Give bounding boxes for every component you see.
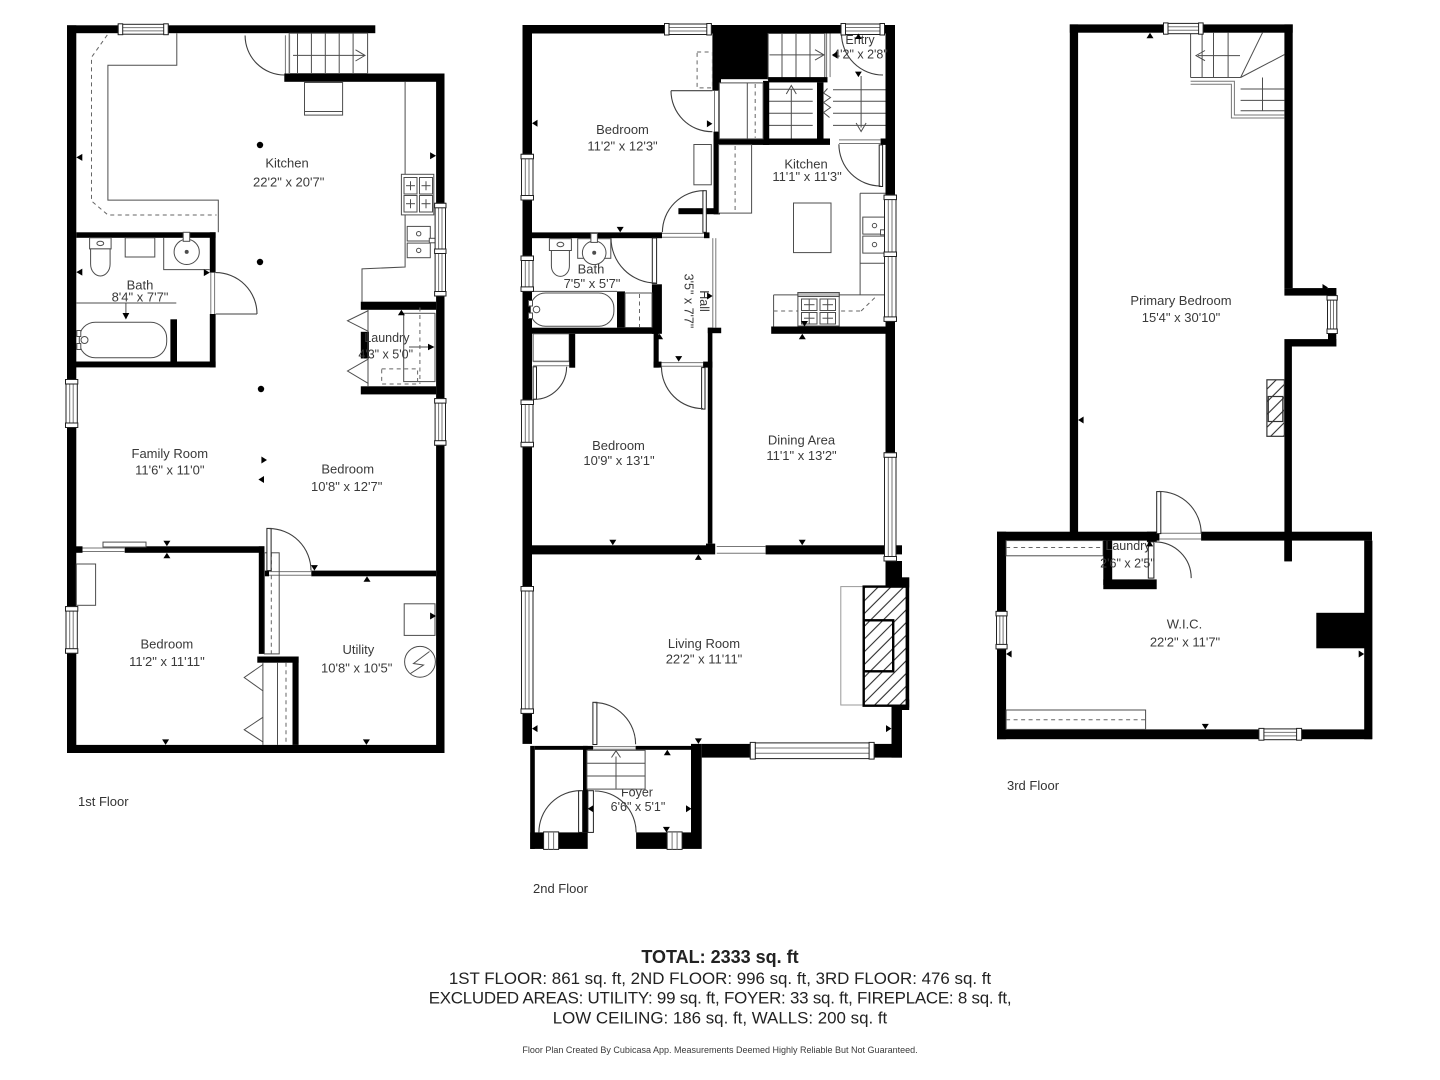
svg-text:Entry: Entry <box>845 33 875 47</box>
svg-text:3'5" x 7'7": 3'5" x 7'7" <box>682 274 696 329</box>
svg-text:Laundry: Laundry <box>1105 539 1151 553</box>
svg-text:8'4" x 7'7": 8'4" x 7'7" <box>112 290 169 305</box>
svg-text:Bedroom: Bedroom <box>592 438 645 453</box>
svg-text:4'3" x 5'0": 4'3" x 5'0" <box>358 348 413 362</box>
svg-text:22'2" x 20'7": 22'2" x 20'7" <box>253 175 325 190</box>
svg-text:1st Floor: 1st Floor <box>78 794 129 809</box>
svg-text:1ST FLOOR: 861 sq. ft, 2ND FLO: 1ST FLOOR: 861 sq. ft, 2ND FLOOR: 996 sq… <box>449 969 992 988</box>
svg-text:EXCLUDED AREAS: UTILITY: 99 sq: EXCLUDED AREAS: UTILITY: 99 sq. ft, FOYE… <box>429 989 1012 1008</box>
svg-text:22'2" x 11'7": 22'2" x 11'7" <box>1150 635 1221 650</box>
svg-text:11'2" x 11'11": 11'2" x 11'11" <box>129 654 205 669</box>
svg-text:LOW CEILING: 186 sq. ft, WALLS: LOW CEILING: 186 sq. ft, WALLS: 200 sq. … <box>553 1009 888 1028</box>
svg-text:3rd Floor: 3rd Floor <box>1007 778 1060 793</box>
svg-text:Bedroom: Bedroom <box>321 462 374 477</box>
svg-text:10'8" x 10'5": 10'8" x 10'5" <box>321 661 393 676</box>
svg-text:Family Room: Family Room <box>132 446 209 461</box>
svg-text:Kitchen: Kitchen <box>265 156 308 171</box>
svg-text:2nd Floor: 2nd Floor <box>533 881 589 896</box>
svg-text:Primary Bedroom: Primary Bedroom <box>1130 293 1231 308</box>
svg-text:W.I.C.: W.I.C. <box>1167 617 1202 632</box>
svg-text:Dining Area: Dining Area <box>768 433 836 448</box>
svg-text:Bedroom: Bedroom <box>141 637 194 652</box>
svg-text:10'8" x 12'7": 10'8" x 12'7" <box>311 479 383 494</box>
svg-text:10'9" x 13'1": 10'9" x 13'1" <box>583 453 655 468</box>
svg-text:11'6" x 11'0": 11'6" x 11'0" <box>135 463 205 478</box>
svg-text:11'1" x 11'3": 11'1" x 11'3" <box>772 169 842 184</box>
svg-text:7'5" x 5'7": 7'5" x 5'7" <box>564 276 621 291</box>
svg-text:Bedroom: Bedroom <box>596 122 649 137</box>
svg-text:4'2" x 2'8": 4'2" x 2'8" <box>833 48 888 62</box>
svg-text:Laundry: Laundry <box>364 331 410 345</box>
svg-text:Utility: Utility <box>343 642 375 657</box>
svg-text:Living Room: Living Room <box>668 636 740 651</box>
svg-text:Floor Plan Created By Cubicasa: Floor Plan Created By Cubicasa App. Meas… <box>522 1045 917 1055</box>
svg-text:TOTAL: 2333 sq. ft: TOTAL: 2333 sq. ft <box>641 947 798 967</box>
svg-text:Hall: Hall <box>697 290 711 312</box>
svg-text:15'4" x 30'10": 15'4" x 30'10" <box>1142 310 1221 325</box>
svg-text:11'2" x 12'3": 11'2" x 12'3" <box>587 139 658 154</box>
svg-text:22'2" x 11'11": 22'2" x 11'11" <box>666 652 743 667</box>
svg-text:2'6" x 2'5": 2'6" x 2'5" <box>1100 557 1155 571</box>
svg-text:11'1" x 13'2": 11'1" x 13'2" <box>766 448 837 463</box>
svg-text:6'6" x 5'1": 6'6" x 5'1" <box>611 800 666 814</box>
